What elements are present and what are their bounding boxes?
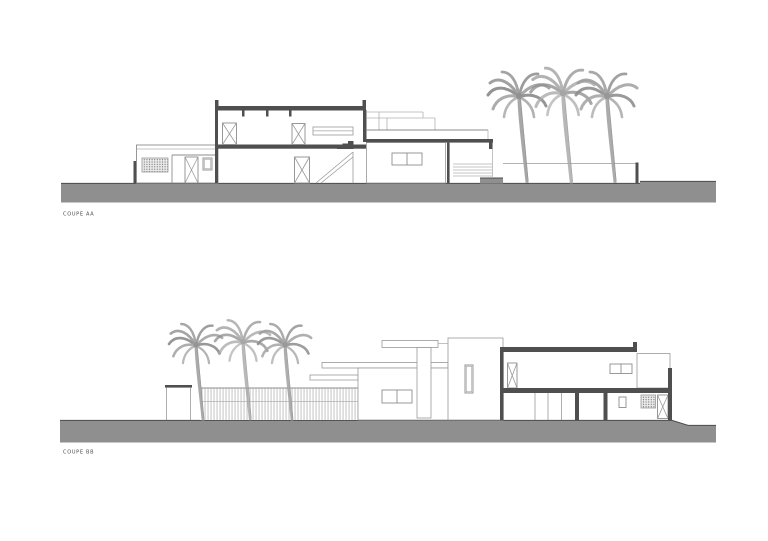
window bbox=[610, 364, 632, 374]
window bbox=[203, 158, 212, 170]
palm-tree-icon bbox=[576, 72, 637, 183]
palm-tree-icon bbox=[531, 68, 594, 183]
coupe-bb-label: COUPE BB bbox=[63, 450, 94, 456]
glazing-mullions bbox=[535, 393, 562, 420]
roof-band-low bbox=[310, 375, 358, 380]
high-window bbox=[313, 127, 353, 135]
door bbox=[295, 157, 310, 183]
vent-grille bbox=[142, 158, 168, 172]
coupe-bb-section: COUPE BB bbox=[60, 320, 716, 455]
door bbox=[292, 124, 305, 145]
drawing-sheet: COUPE AA bbox=[0, 0, 768, 541]
door bbox=[658, 395, 669, 419]
ground-bb bbox=[60, 420, 716, 443]
wall-cut bbox=[668, 368, 672, 420]
narrow-window bbox=[465, 365, 473, 393]
palm-tree-icon bbox=[488, 72, 549, 183]
porch-louvers bbox=[453, 143, 493, 178]
gate-bb bbox=[165, 385, 192, 420]
window bbox=[392, 153, 422, 165]
garden-wall-cut bbox=[134, 161, 137, 183]
palm-trees-aa bbox=[488, 68, 637, 183]
coupe-aa-section: COUPE AA bbox=[61, 68, 716, 217]
small-window bbox=[619, 397, 626, 408]
pilaster bbox=[417, 348, 431, 419]
roof-slab-cut bbox=[215, 106, 366, 111]
vent-grille bbox=[641, 395, 656, 408]
roof-parapet-volume bbox=[637, 354, 670, 389]
coupe-aa-label: COUPE AA bbox=[63, 212, 94, 218]
roof-band-top bbox=[382, 341, 438, 348]
window bbox=[382, 390, 412, 403]
door bbox=[223, 123, 237, 145]
door bbox=[508, 363, 518, 388]
porch-post bbox=[447, 143, 450, 183]
tall-volume bbox=[448, 338, 503, 420]
architect-sections-drawing: COUPE AA bbox=[0, 0, 768, 541]
door bbox=[185, 157, 198, 183]
slatted-fence-bb bbox=[200, 388, 367, 420]
main-section-aa bbox=[215, 100, 367, 183]
floor-slab-cut bbox=[500, 388, 672, 393]
annex-right-aa bbox=[366, 112, 493, 183]
roof-slab-cut bbox=[500, 347, 637, 352]
main-section-bb bbox=[500, 342, 672, 420]
fence-post-cut bbox=[636, 163, 639, 184]
annex-left-aa bbox=[137, 145, 219, 183]
annex-roof-slab bbox=[366, 139, 493, 143]
